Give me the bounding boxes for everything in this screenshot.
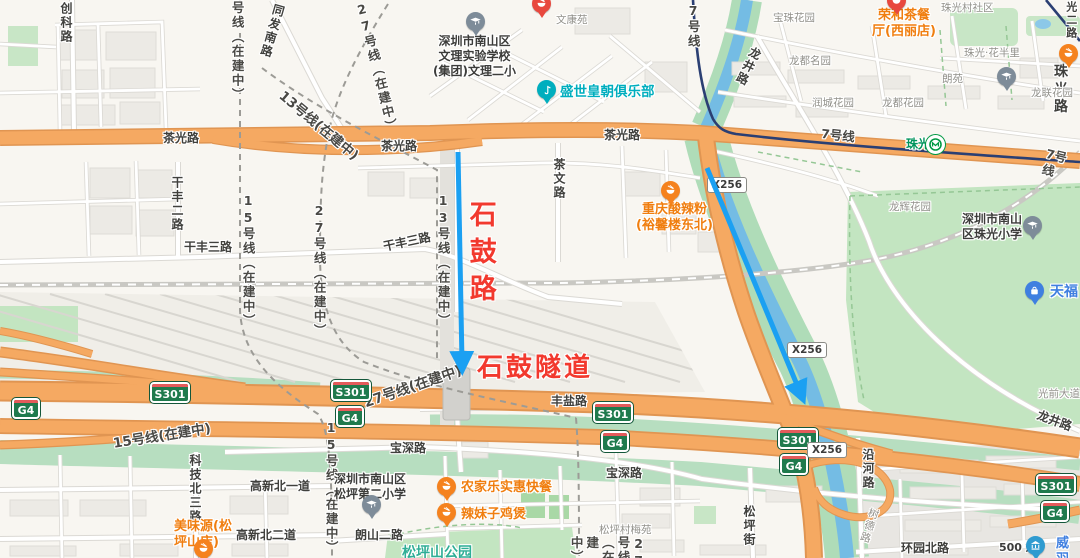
label-metro-7-top: 7号线 <box>685 3 701 49</box>
label-road-chaguang-lu-3: 茶光路 <box>604 128 640 143</box>
s301-badge-text: S301 <box>336 386 367 399</box>
label-estate-songpingcun-meiyuan: 松坪村梅苑 <box>599 524 652 537</box>
g4-badge-text: G4 <box>786 460 803 473</box>
s301-road-badge: S301 <box>1036 474 1076 495</box>
food-pin-ronghe-icon[interactable] <box>887 0 907 17</box>
label-estate-longdu-mingyuan: 龙都名园 <box>789 55 831 68</box>
s301-road-badge: S301 <box>150 382 190 403</box>
label-estate-zhuguangcun-shequ: 珠光村社区 <box>941 2 994 15</box>
label-estate-wenkangyuan: 文康苑 <box>556 14 588 27</box>
label-road-baoshen-lu-1: 宝深路 <box>390 441 426 456</box>
label-annotation-shigu-tunnel: 石鼓隧道 <box>477 352 593 385</box>
g4-badge-text: G4 <box>342 412 359 425</box>
g4-road-badge: G4 <box>1041 501 1069 522</box>
label-road-kejibei-sanlu: 科技北三路 <box>187 454 202 524</box>
metro-pin-zhuguang-station-icon[interactable] <box>926 135 946 161</box>
label-road-fengyan-lu: 丰盐路 <box>551 394 587 409</box>
label-road-chaguang-lu-2: 茶光路 <box>381 139 417 154</box>
food-pin-lameizi-icon[interactable] <box>437 503 457 529</box>
label-poi-wei-clipped[interactable]: 威 羽 <box>1056 536 1069 558</box>
shop-pin-tianfu-icon[interactable] <box>1025 281 1045 307</box>
x256-road-badge: X256 <box>807 442 847 458</box>
food-pin-zhuguang-east-icon[interactable] <box>1059 44 1079 70</box>
label-metro-27-low: 27号线（在建中） <box>568 536 646 558</box>
label-metro-15-mid: 15号线（在建中） <box>240 193 256 329</box>
x256-badge-text: X256 <box>712 179 742 191</box>
g4-road-badge: G4 <box>12 398 40 419</box>
s301-badge-text: S301 <box>1041 480 1072 493</box>
label-poi-nongjiale[interactable]: 农家乐实惠快餐 <box>461 480 552 496</box>
label-poi-shengshi-huangchao-club[interactable]: 盛世皇朝俱乐部 <box>560 84 655 101</box>
school-pin-zhuguang-icon[interactable] <box>1023 216 1043 242</box>
labels-layer: 创科路同发南路茶光路茶光路茶光路干丰二路干丰三路干丰三路茶文路丰盐路宝深路宝深路… <box>0 0 1080 558</box>
label-metro-15-diag: 15号线(在建中) <box>112 421 212 453</box>
label-metro-13-diag: 13号线(在建中) <box>275 88 361 164</box>
school-pin-longlian-icon[interactable] <box>997 67 1017 93</box>
label-road-huanyuan-beilu: 环园北路 <box>901 541 949 556</box>
x256-badge-text: X256 <box>792 344 822 356</box>
label-road-guang-er-lu: 光二路 <box>1064 1 1078 40</box>
label-school-wenli-exp: 深圳市南山区 文理实验学校 (集团)文理二小 <box>433 34 516 79</box>
label-metro-7-mid: 7号线 <box>820 126 855 145</box>
g4-road-badge: G4 <box>780 454 808 475</box>
label-road-ganfeng-sanlu-1: 干丰三路 <box>184 240 232 255</box>
food-pin-chongqing-icon[interactable] <box>661 181 681 207</box>
school-pin-wenli-icon[interactable] <box>466 12 486 38</box>
label-metro-27-mid: 27号线（在建中） <box>311 203 327 339</box>
label-metro-7-right: 7号线 <box>1040 146 1079 184</box>
s301-badge-text: S301 <box>155 388 186 401</box>
label-metro-27-diag: 27号线(在建中) <box>362 363 464 413</box>
label-annotation-shigu-road: 石鼓路 <box>463 200 497 311</box>
bank-pin-wei-icon[interactable] <box>1026 536 1046 558</box>
x256-road-badge: X256 <box>707 177 747 193</box>
label-road-baoshen-lu-2: 宝深路 <box>606 466 642 481</box>
label-estate-runcheng-huayuan: 润城花园 <box>812 97 854 110</box>
label-road-chaguang-lu-1: 茶光路 <box>163 131 199 146</box>
label-road-shude-lu: 树德路 <box>856 506 880 546</box>
food-pin-nongjiale-icon[interactable] <box>437 477 457 503</box>
label-metro-15-top: 号线（在建中） <box>229 1 245 103</box>
label-road-yanhe-lu: 沿河路 <box>860 448 875 490</box>
g4-badge-text: G4 <box>18 404 35 417</box>
label-estate-longdu-huayuan: 龙都花园 <box>882 97 924 110</box>
label-estate-longhui-huayuan: 龙辉花园 <box>889 201 931 214</box>
g4-road-badge: G4 <box>336 406 364 427</box>
club-pin-shengshi-icon[interactable] <box>537 80 557 106</box>
label-road-guangqian-dadao: 光前大道 <box>1038 388 1080 401</box>
label-road-ganfeng-erlu: 干丰二路 <box>169 176 184 232</box>
food-pin-meiweiyuan-icon[interactable] <box>194 539 214 558</box>
label-road-chuangke-lu: 创科路 <box>58 2 73 44</box>
g4-road-badge: G4 <box>601 431 629 452</box>
label-estate-longlian-huayuan: 龙联花园 <box>1031 87 1073 100</box>
x256-road-badge: X256 <box>787 342 827 358</box>
label-estate-baozhu-huayuan: 宝珠花园 <box>773 12 815 25</box>
g4-badge-text: G4 <box>1047 507 1064 520</box>
label-road-gaoxin-beierdao: 高新北二道 <box>236 528 296 543</box>
label-road-chawen-lu: 茶文路 <box>551 158 566 200</box>
s301-road-badge: S301 <box>593 402 633 423</box>
label-poi-tianfu[interactable]: 天福 <box>1050 284 1078 302</box>
label-road-ganfeng-sanlu-2: 干丰三路 <box>382 230 432 255</box>
food-pin-wenkangyuan-icon[interactable] <box>532 0 552 20</box>
label-road-longjing-lu-2: 龙井路 <box>1035 408 1074 434</box>
school-pin-songping2-icon[interactable] <box>362 495 382 521</box>
label-estate-zhuguang-huabanli: 珠光·花半里 <box>964 47 1020 60</box>
label-park-songpingshan: 松坪山公园 <box>402 545 472 558</box>
label-metro-13-mid: 13号线（在建中） <box>435 193 451 329</box>
label-road-tongfa-nanlu: 同发南路 <box>257 2 287 60</box>
x256-badge-text: X256 <box>812 444 842 456</box>
g4-badge-text: G4 <box>607 437 624 450</box>
s301-road-badge: S301 <box>331 380 371 401</box>
s301-badge-text: S301 <box>598 408 629 421</box>
map-canvas[interactable]: 创科路同发南路茶光路茶光路茶光路干丰二路干丰三路干丰三路茶文路丰盐路宝深路宝深路… <box>0 0 1080 558</box>
label-estate-langyuan: 朗苑 <box>942 73 963 86</box>
label-metro-27-top: 27号线（在建中） <box>352 0 400 135</box>
label-road-langshan-erlu: 朗山二路 <box>355 528 403 543</box>
label-road-longjing-lu-1: 龙井路 <box>732 44 764 88</box>
label-road-gaoxin-beiyidao: 高新北一道 <box>250 479 310 494</box>
label-school-zhuguang-primary: 深圳市南山 区珠光小学 <box>962 212 1022 242</box>
label-poi-lameizi-jibao[interactable]: 辣妹子鸡煲 <box>461 507 526 523</box>
label-road-songping-jie: 松坪街 <box>741 505 756 547</box>
